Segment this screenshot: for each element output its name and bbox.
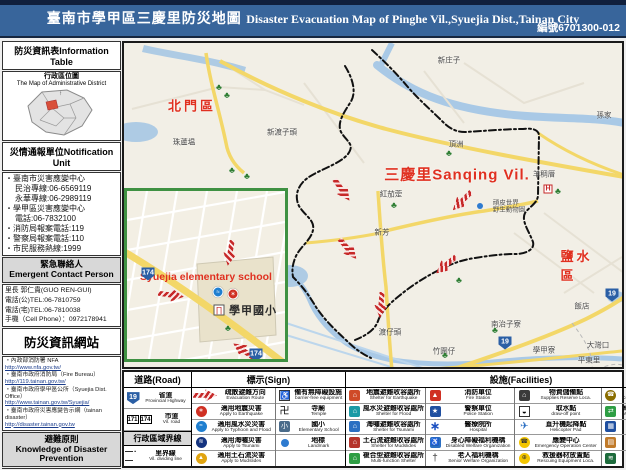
legend-facilities-header: 設施(Facilities) — [346, 372, 626, 388]
admin-district-minimap: ↑ — [12, 88, 112, 138]
legend-item-label-en: Apply to Mudslides — [212, 460, 271, 465]
legend-item-label-en: Multi-function Shelter — [365, 460, 421, 465]
document-number: 編號6701300-012 — [537, 20, 620, 35]
legend-item-label-en: Emergency Operation Center — [535, 444, 597, 449]
legend-item-label-en: Communication Equipment Loca. — [622, 396, 626, 401]
legend-item-icon-cell: ☎ — [603, 390, 619, 401]
map-legend: 道路(Road) 19省道Provincial Highway171174市道V… — [122, 370, 624, 468]
legend-item: ♿身心障礙福利機構Disabled Welfare Organization — [426, 435, 514, 451]
garbage-icon: ▦ — [605, 421, 616, 432]
emergency-contact-info: 里長 郭仁貴(GUO REN-GUI)電話(公)TEL:06-7810759電話… — [2, 284, 121, 327]
tree-icon: ♣ — [456, 275, 462, 285]
tree-icon: ♣ — [442, 350, 448, 360]
legend-item-icon-cell: ∗ — [427, 421, 443, 432]
legend-item-text: 地標Landmark — [293, 437, 344, 450]
website-link[interactable]: http://119.tainan.gov.tw/ — [5, 379, 118, 386]
legend-item-text: 沙包放置點位Sand bag placing location — [619, 437, 626, 450]
legend-item-label-en: Inundation Detector Sensor — [622, 460, 626, 465]
legend-item-label-en: Rescuing Equipment Loca. — [535, 460, 597, 465]
tree-icon: ♣ — [229, 165, 235, 175]
inset-school-label-en: Syuejia elementary school — [140, 271, 272, 283]
legend-item-icon-cell: —·— — [125, 447, 141, 465]
contact-line: 里長 郭仁貴(GUO REN-GUI) — [5, 286, 118, 296]
legend-item-label-en: Sand bag placing location — [622, 444, 626, 449]
notification-unit-title: 災情通報單位Notification Unit — [2, 142, 121, 171]
legend-item-icon-cell: ⌂ — [347, 453, 363, 464]
legend-item-icon-cell: ≋ — [193, 437, 209, 448]
legend-item: ☎通訊設備放置點Communication Equipment Loca. — [602, 388, 626, 404]
legend-item-text: 適用地震災害Apply to Earthquake — [209, 405, 274, 418]
legend-item-text: 物資儲備點Supplies Reserve Loca. — [532, 389, 599, 402]
legend-item-label-en: Temple — [295, 412, 342, 417]
tree-icon: ♣ — [224, 90, 230, 100]
legend-item: ☎應變中心Emergency Operation Center — [515, 435, 600, 451]
info-table-title: 防災資訊表Information Table — [2, 41, 121, 70]
legend-item: 地標Landmark — [276, 435, 345, 451]
evacuation-principles-list: ・水災:就近避難或垂直避難；低窪地區前往避難收容處所・地震:前往開放空間或公園避… — [2, 468, 121, 469]
legend-road-section: 道路(Road) 19省道Provincial Highway171174市道V… — [124, 372, 192, 466]
legend-sign-section: 標示(Sign) 疏散避難方向Evacuation Route∗適用地震災害Ap… — [192, 372, 346, 466]
title-english: Disaster Evacuation Map of Pinghe Vil.,S… — [246, 12, 579, 26]
rescue-equip-icon: ⊕ — [519, 453, 530, 464]
shelter-mudslide-icon: ⌂ — [349, 437, 360, 448]
fire-station-icon: ▲ — [430, 390, 441, 401]
disaster-map-poster: 臺南市學甲區三慶里防災地圖 Disaster Evacuation Map of… — [0, 0, 626, 470]
senior-welfare-icon: † — [432, 453, 438, 464]
district-label: 北門區 — [168, 96, 216, 115]
legend-item-label-en: Shelter for Flood — [365, 412, 421, 417]
legend-empty-cell — [276, 451, 345, 466]
legend-item-icon-cell: † — [427, 453, 443, 464]
legend-item-icon-cell: ▦ — [603, 421, 619, 432]
legend-item: ⌂地震避難收容處所Shelter for Earthquake — [346, 388, 425, 404]
notification-line: 永華專線:06-2989119 — [5, 194, 118, 204]
legend-item-text: 里界線Vil. dividing line — [141, 450, 190, 463]
contact-title-en: Emergent Contact Person — [4, 270, 119, 280]
legend-item-label-en: Hospital — [446, 428, 511, 433]
tree-icon: ♣ — [244, 171, 250, 181]
legend-item-text: 寺廟Temple — [293, 405, 344, 418]
legend-sign-column: 疏散避難方向Evacuation Route∗適用地震災害Apply to Ea… — [192, 388, 276, 466]
title-chinese: 臺南市學甲區三慶里防災地圖 — [47, 10, 242, 26]
legend-item-label-en: Fire Station — [446, 396, 511, 401]
legend-item-icon-cell: ⌂ — [347, 390, 363, 401]
legend-item: ▲適用土石流災害Apply to Mudslides — [192, 451, 275, 466]
svg-text:↑: ↑ — [59, 91, 62, 97]
legend-item-icon-cell: ≋ — [603, 453, 619, 464]
tree-icon: ♣ — [555, 186, 561, 196]
legend-item: ⌂海嘯避難收容處所Shelter for Tsunami — [346, 420, 425, 436]
legend-item-text: 適用土石流災害Apply to Mudslides — [209, 452, 274, 465]
legend-item-icon-cell: ★ — [427, 406, 443, 417]
websites-list: ・內政部消防署 NFAhttp://www.nfa.gov.tw/・臺南市政府消… — [2, 356, 121, 431]
legend-item: 小國小Elementary School — [276, 420, 345, 436]
shelter-flood-icon: ⌂ — [349, 406, 360, 417]
eoc-icon: ☎ — [519, 437, 530, 448]
district-label: 三慶里Sanqing Vil. — [384, 164, 530, 185]
legend-item-icon-cell: ≈ — [193, 421, 209, 432]
tree-icon: ♣ — [391, 200, 397, 210]
legend-item-text: 取水點draw-off point — [532, 405, 599, 418]
legend-item-label-en: Police Station — [446, 412, 511, 417]
notification-line: 電話:06-7832100 — [5, 214, 118, 224]
legend-item: ✈直升機起降點Helicopter Pad — [515, 420, 600, 436]
legend-item-icon-cell: ⌂ — [347, 421, 363, 432]
disabled-welfare-icon: ♿ — [430, 437, 441, 448]
helipad-icon: ✈ — [520, 421, 528, 432]
provincial-highway-shield-icon: 19 — [127, 392, 140, 404]
legend-item-icon-cell: ⌂ — [347, 406, 363, 417]
legend-item-label-en: Apply to Earthquake — [212, 412, 271, 417]
school-box-icon: 小 — [279, 421, 290, 432]
website-label: ・內政部消防署 NFA — [5, 358, 118, 365]
legend-item-label-en: Senior Welfare Organization — [446, 460, 511, 465]
legend-item: ▦垃圾集結點Garbage assembly area — [602, 420, 626, 436]
legend-item: 疏散避難方向Evacuation Route — [192, 388, 275, 404]
legend-item-icon-cell: ⊕ — [516, 453, 532, 464]
contact-line: 電話(公)TEL:06-7810759 — [5, 296, 118, 306]
flood-circle-icon: ≈ — [196, 421, 207, 432]
temple-icon: 卍 — [280, 406, 290, 417]
legend-item-icon-cell: 小 — [277, 421, 293, 432]
websites-title: 防災資訊網站 — [2, 328, 121, 355]
drawoff-icon: ◒ — [519, 406, 530, 417]
dash-dot-icon: —·— — [125, 447, 141, 465]
legend-facilities-section: 設施(Facilities) ⌂地震避難收容處所Shelter for Eart… — [346, 372, 626, 466]
hospital-icon: ∗ — [430, 421, 440, 432]
legend-item-icon-cell: ◒ — [516, 406, 532, 417]
legend-item-label-en: Apply to Tsunami — [212, 444, 271, 449]
legend-item-icon-cell: ▤ — [603, 437, 619, 448]
legend-item-label-en: Elementary School — [295, 428, 342, 433]
legend-item-label-zh: 垃圾集結點 — [619, 421, 626, 428]
legend-item-icon-cell: ∗ — [193, 406, 209, 417]
legend-item-text: 風水災避難收容處所Shelter for Flood — [363, 405, 424, 418]
legend-item-text: 淹水感測器Inundation Detector Sensor — [619, 452, 626, 465]
website-label: ・臺南市政府學甲區公所（Syuejia Dist. Office） — [5, 387, 118, 401]
legend-item-label-en: Apply to Typhoon and Flood — [212, 428, 271, 433]
legend-facilities-column: ☎通訊設備放置點Communication Equipment Loca.⇄車輛… — [602, 388, 626, 466]
legend-item-icon-cell: ⇄ — [603, 406, 619, 417]
legend-item-text: 地震避難收容處所Shelter for Earthquake — [363, 389, 424, 402]
legend-sign-header: 標示(Sign) — [192, 372, 345, 388]
map-place-label: 渡仔頭 — [379, 327, 402, 338]
emergency-contact-header: 緊急聯絡人 Emergent Contact Person — [2, 257, 121, 283]
legend-item: 171174市道Vil. road — [124, 409, 191, 430]
legend-item-text: 土石流避難收容處所Shelter for Mudslides — [363, 437, 424, 450]
legend-item-text: 老人福利機構Senior Welfare Organization — [443, 452, 513, 465]
legend-item-icon-cell: ✈ — [516, 421, 532, 432]
legend-item: ⌂土石流避難收容處所Shelter for Mudslides — [346, 435, 425, 451]
map-place-label: 學甲寮 — [533, 345, 556, 356]
title-banner: 臺南市學甲區三慶里防災地圖 Disaster Evacuation Map of… — [0, 0, 626, 38]
legend-item: ∗醫療院所Hospital — [426, 420, 514, 436]
transfer-point-icon: ⇄ — [605, 406, 616, 417]
legend-item-text: 消防單位Fire Station — [443, 389, 513, 402]
shelter-multi-icon: ⌂ — [349, 453, 360, 464]
inset-school-label-zh: 學甲國小 — [229, 302, 277, 318]
map-place-label: 大灣口 — [587, 340, 610, 351]
sandbag-icon: ▤ — [605, 437, 616, 448]
info-sidebar: 防災資訊表Information Table 行政區位圖 The Map of … — [2, 41, 121, 469]
shelter-earthquake-icon: ⌂ — [349, 390, 360, 401]
legend-item-text: 市道Vil. road — [153, 413, 190, 426]
legend-item-text: 省道Provincial Highway — [141, 392, 190, 405]
legend-item: ⌂風水災避難收容處所Shelter for Flood — [346, 404, 425, 420]
map-place-label: 平東里 — [578, 355, 601, 366]
notification-unit-list: ・臺南市災害應變中心民治專線:06-6569119永華專線:06-2989119… — [2, 172, 121, 256]
legend-item-label-en: Helicopter Pad — [535, 428, 597, 433]
earthquake-shelter-icon: ∗ — [228, 289, 239, 300]
hospital-marker: H — [544, 185, 553, 194]
map-place-label: 羊稠厝 — [533, 169, 556, 180]
legend-boundary-header: 行政區域界線 — [124, 431, 191, 446]
map-place-label: 新庄子 — [438, 55, 461, 66]
notification-line: 民治專線:06-6569119 — [5, 184, 118, 194]
legend-item-text: 應變中心Emergency Operation Center — [532, 437, 599, 450]
legend-item-text: 疏散避難方向Evacuation Route — [217, 389, 274, 402]
legend-item-label-zh: 沙包放置點位 — [619, 437, 626, 444]
notification-line: ・市民服務熱線:1999 — [5, 244, 118, 254]
legend-item: 卍寺廟Temple — [276, 404, 345, 420]
legend-item: ∗適用地震災害Apply to Earthquake — [192, 404, 275, 420]
legend-item: ≋適用海嘯災害Apply to Tsunami — [192, 435, 275, 451]
legend-item-icon-cell: 卍 — [277, 406, 293, 417]
legend-item-text: 國小Elementary School — [293, 421, 344, 434]
legend-item-text: 直升機起降點Helicopter Pad — [532, 421, 599, 434]
evacuation-arrow-icon — [193, 389, 217, 402]
tsunami-circle-icon: ≋ — [196, 437, 207, 448]
tree-icon: ♣ — [225, 323, 231, 333]
flood-sensor-icon: ≋ — [605, 453, 616, 464]
website-label: ・臺南市政府災害應變告示網（tainan disaster） — [5, 408, 118, 422]
notification-line: ・消防局報案電話:119 — [5, 224, 118, 234]
legend-item: ⌂複合型避難收容處所Multi-function Shelter — [346, 451, 425, 466]
comm-equip-icon: ☎ — [605, 390, 616, 401]
legend-item: ≋淹水感測器Inundation Detector Sensor — [602, 451, 626, 466]
legend-item-text: 車輛及人員轉運集結點Vehicle and people transfer po… — [619, 405, 626, 418]
school-building-icon: ∏ — [214, 305, 225, 316]
legend-item: †老人福利機構Senior Welfare Organization — [426, 451, 514, 466]
legend-item-icon-cell: ⌂ — [347, 437, 363, 448]
school-inset-map: Syuejia elementary school ≈ ∗ ∏ 學甲國小 ♣ 1… — [124, 188, 288, 362]
legend-item-text: 醫療院所Hospital — [443, 421, 513, 434]
legend-item-label-en: Shelter for Tsunami — [365, 428, 421, 433]
district-label: 鹽水區 — [561, 246, 602, 284]
legend-item-icon-cell: ⌂ — [516, 390, 532, 401]
legend-facilities-column: ▲消防單位Fire Station★警察單位Police Station∗醫療院… — [426, 388, 515, 466]
legend-item-label-en: Provincial Highway — [143, 399, 188, 404]
map-place-label: 紅茄萣 — [380, 189, 403, 200]
supplies-icon: ⌂ — [519, 390, 530, 401]
legend-item-text: 海嘯避難收容處所Shelter for Tsunami — [363, 421, 424, 434]
legend-item-text: 警察單位Police Station — [443, 405, 513, 418]
legend-item-text: 救援器材放置點Rescuing Equipment Loca. — [532, 452, 599, 465]
notification-line: ・警察局報案電話:110 — [5, 234, 118, 244]
county-road-shield: 174 — [250, 349, 263, 362]
legend-item: ◒取水點draw-off point — [515, 404, 600, 420]
legend-item-icon-cell: ♿ — [427, 437, 443, 448]
legend-sign-column: ♿備有無障礙設施barrier-free equipment卍寺廟Temple小… — [276, 388, 345, 466]
principles-title-en: Knowledge of Disaster Prevention — [4, 445, 119, 465]
legend-item-icon-cell: ☎ — [516, 437, 532, 448]
tree-icon: ♣ — [216, 82, 222, 92]
website-label: ・臺南市政府消防局（Fire Bureau） — [5, 372, 118, 379]
legend-item-label-en: Vehicle and people transfer point — [622, 412, 626, 417]
legend-item-text: 備有無障礙設施barrier-free equipment — [293, 389, 344, 402]
zoo-marker — [477, 203, 483, 209]
tree-icon: ♣ — [446, 148, 452, 158]
landmark-dot-icon — [281, 439, 289, 447]
map-place-label: 珠蘆塭 — [173, 137, 196, 148]
legend-item-icon-cell: ▲ — [193, 453, 209, 464]
earthquake-circle-icon: ∗ — [196, 406, 207, 417]
legend-item: ≈適用風水災災害Apply to Typhoon and Flood — [192, 420, 275, 436]
legend-facilities-column: ⌂地震避難收容處所Shelter for Earthquake⌂風水災避難收容處… — [346, 388, 426, 466]
county-road-number-icon: 174 — [140, 415, 152, 424]
legend-item-text: 適用海嘯災害Apply to Tsunami — [209, 437, 274, 450]
legend-item-icon-cell — [193, 389, 217, 402]
legend-item: ⌂物資儲備點Supplies Reserve Loca. — [515, 388, 600, 404]
legend-item-text: 複合型避難收容處所Multi-function Shelter — [363, 452, 424, 465]
notification-line: ・學甲區災害應變中心 — [5, 204, 118, 214]
website-link[interactable]: http://www.tainan.gov.tw/Syuejia/ — [5, 400, 118, 407]
legend-item-label-en: Evacuation Route — [219, 396, 271, 401]
legend-item-label-en: Shelter for Earthquake — [365, 396, 421, 401]
legend-facilities-column: ⌂物資儲備點Supplies Reserve Loca.◒取水點draw-off… — [515, 388, 601, 466]
legend-item-text: 身心障礙福利機構Disabled Welfare Organization — [443, 437, 513, 450]
page-title: 臺南市學甲區三慶里防災地圖 Disaster Evacuation Map of… — [0, 8, 626, 28]
legend-item-text: 適用風水災災害Apply to Typhoon and Flood — [209, 421, 274, 434]
notification-line: ・臺南市災害應變中心 — [5, 174, 118, 184]
legend-item: ♿備有無障礙設施barrier-free equipment — [276, 388, 345, 404]
map-place-label: 頑皮世界 野生動物園 — [493, 200, 526, 215]
legend-item-icon-cell: 19 — [125, 392, 141, 404]
contact-line: 手機（Cell Phone）：0972178941 — [5, 315, 118, 325]
legend-item-label-en: draw-off point — [535, 412, 597, 417]
legend-item: ⊕救援器材放置點Rescuing Equipment Loca. — [515, 451, 600, 466]
legend-item: ▲消防單位Fire Station — [426, 388, 514, 404]
legend-item-text: 垃圾集結點Garbage assembly area — [619, 421, 626, 434]
legend-road-header: 道路(Road) — [124, 372, 191, 388]
admin-district-map-box: 行政區位圖 The Map of Administrative District… — [2, 71, 121, 141]
flood-shelter-icon: ≈ — [213, 287, 224, 298]
legend-item-icon-cell — [277, 439, 293, 447]
evacuation-principles-header: 避難原則 Knowledge of Disaster Prevention — [2, 432, 121, 467]
legend-item: 19省道Provincial Highway — [124, 388, 191, 409]
legend-item-icon-cell: ♿ — [277, 390, 293, 401]
map-place-label: 新渡子頭 — [267, 127, 297, 138]
legend-item: ⇄車輛及人員轉運集結點Vehicle and people transfer p… — [602, 404, 626, 420]
contact-line: 電話(宅)TEL:06-7810038 — [5, 306, 118, 316]
legend-item-label-en: Landmark — [295, 444, 342, 449]
shelter-tsunami-icon: ⌂ — [349, 421, 360, 432]
mudslide-circle-icon: ▲ — [196, 453, 207, 464]
legend-item-label-en: Vil. road — [154, 421, 188, 426]
admin-map-title: 行政區位圖 — [5, 73, 118, 81]
evacuation-map: Syuejia elementary school ≈ ∗ ∏ 學甲國小 ♣ 1… — [122, 41, 624, 369]
website-link[interactable]: http://disaster.tainan.gov.tw — [5, 422, 118, 429]
legend-item-label-en: Disabled Welfare Organization — [446, 444, 511, 449]
legend-item-label-en: Shelter for Mudslides — [365, 444, 421, 449]
legend-item: —·—里界線Vil. dividing line — [124, 446, 191, 466]
legend-item-icon-cell: ▲ — [427, 390, 443, 401]
legend-item-label-en: barrier-free equipment — [295, 396, 342, 401]
legend-item-label-en: Garbage assembly area — [622, 428, 626, 433]
legend-item: ▤沙包放置點位Sand bag placing location — [602, 435, 626, 451]
admin-map-subtitle: The Map of Administrative District — [5, 81, 118, 88]
tree-icon: ♣ — [492, 325, 498, 335]
legend-item-label-en: Supplies Reserve Loca. — [535, 396, 597, 401]
police-station-icon: ★ — [430, 406, 441, 417]
legend-item-icon-cell: 171174 — [125, 415, 153, 424]
map-place-label: 飯店 — [575, 301, 590, 312]
map-place-label: 新芳 — [375, 227, 390, 238]
wheelchair-icon: ♿ — [279, 390, 290, 401]
legend-item: ★警察單位Police Station — [426, 404, 514, 420]
legend-item-text: 通訊設備放置點Communication Equipment Loca. — [619, 389, 626, 402]
legend-item-label-en: Vil. dividing line — [143, 457, 188, 462]
map-place-label: 孫家 — [597, 110, 612, 121]
county-road-number-icon: 171 — [127, 415, 139, 424]
